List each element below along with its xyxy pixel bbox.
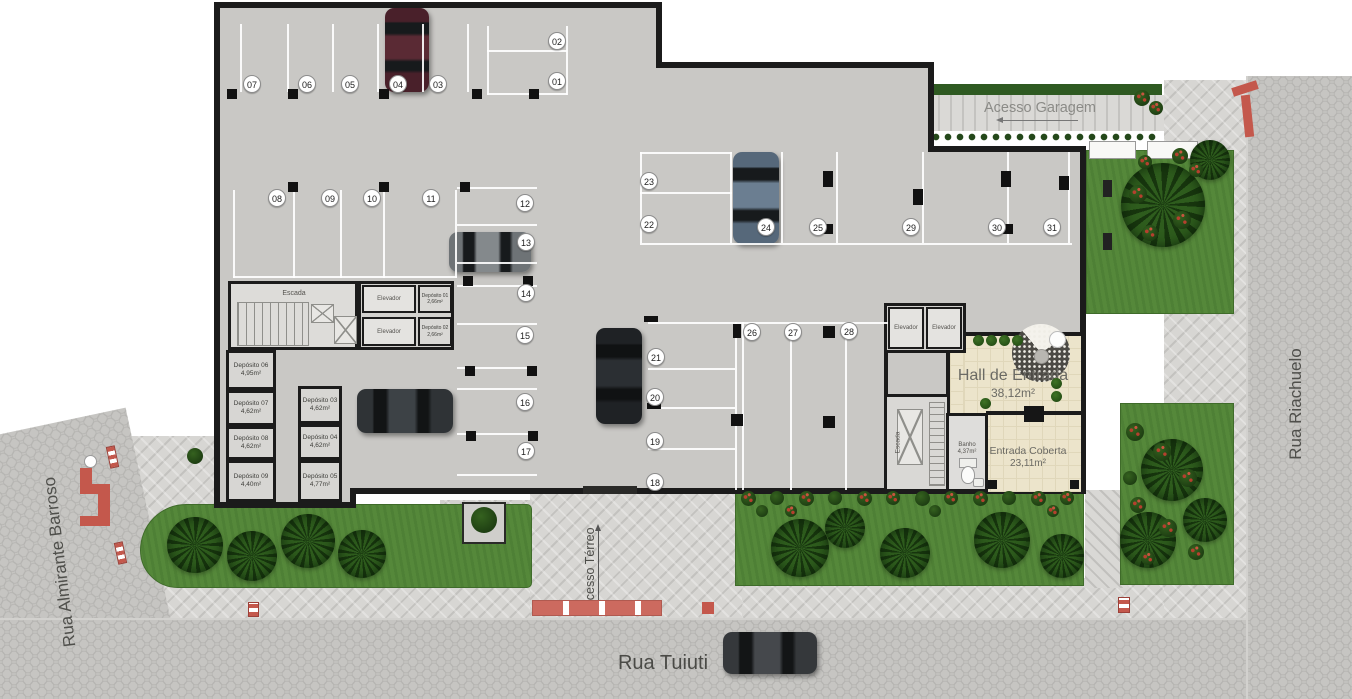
stall-line bbox=[487, 93, 567, 95]
shrub bbox=[1138, 155, 1152, 169]
stall-line bbox=[742, 322, 744, 490]
parking-spot-badge: 03 bbox=[429, 75, 447, 93]
parking-spot-badge: 20 bbox=[646, 388, 664, 406]
parking-spot-badge: 12 bbox=[516, 194, 534, 212]
stall-line bbox=[836, 152, 838, 243]
hall-table bbox=[1049, 331, 1066, 348]
potted-plant bbox=[980, 398, 991, 409]
pillar bbox=[1059, 176, 1069, 190]
parking-spot-badge: 06 bbox=[298, 75, 316, 93]
tactile-strip bbox=[532, 600, 662, 616]
parking-spot-badge: 22 bbox=[640, 215, 658, 233]
parking-spot-badge: 13 bbox=[517, 233, 535, 251]
shrub bbox=[1031, 491, 1046, 506]
deposito-area: 2,66m² bbox=[427, 332, 443, 339]
stall-line bbox=[566, 26, 568, 95]
stair-treads-hall bbox=[929, 402, 945, 486]
shrub bbox=[1141, 551, 1155, 565]
parking-spot-badge: 21 bbox=[647, 348, 665, 366]
pillar bbox=[731, 414, 743, 426]
parking-spot-badge: 07 bbox=[243, 75, 261, 93]
stair-landing-2 bbox=[334, 316, 357, 344]
parking-spot-badge: 09 bbox=[321, 189, 339, 207]
pillar bbox=[733, 324, 741, 338]
parking-spot-badge: 14 bbox=[517, 284, 535, 302]
coberta-wall-b bbox=[1044, 411, 1082, 415]
shrub bbox=[929, 505, 941, 517]
coberta-area: 23,11m² bbox=[968, 458, 1088, 469]
stall-line bbox=[457, 262, 537, 264]
bench-2 bbox=[1103, 233, 1112, 250]
shrub bbox=[1189, 163, 1203, 177]
stair-room-hall: Escada bbox=[884, 394, 950, 492]
tree bbox=[771, 519, 829, 577]
deposito-area: 2,66m² bbox=[427, 299, 443, 306]
shrub bbox=[799, 491, 814, 506]
pillar bbox=[823, 171, 833, 187]
shrub bbox=[785, 505, 797, 517]
parking-spot-badge: 24 bbox=[757, 218, 775, 236]
deposito-room: Depósito 094,40m² bbox=[226, 460, 276, 502]
parking-spot-badge: 18 bbox=[646, 473, 664, 491]
parking-spot-badge: 29 bbox=[902, 218, 920, 236]
pillar bbox=[379, 182, 389, 192]
planter-1 bbox=[1089, 141, 1136, 159]
stall-line bbox=[377, 24, 379, 92]
pillar bbox=[460, 182, 470, 192]
stall-line bbox=[845, 322, 847, 490]
deposito-name: Depósito 06 bbox=[234, 362, 269, 370]
shrub bbox=[1172, 148, 1188, 164]
stall-line bbox=[790, 322, 792, 490]
deposito-area: 4,62m² bbox=[241, 408, 261, 416]
shrub bbox=[1126, 423, 1144, 441]
hall-name: Hall de Entrada bbox=[943, 367, 1083, 385]
tree bbox=[880, 528, 930, 578]
stair-hall-label: Escada bbox=[895, 418, 902, 468]
deposito-room: Depósito 012,66m² bbox=[418, 285, 452, 313]
potted-plant bbox=[1051, 378, 1062, 389]
parking-spot-badge: 26 bbox=[743, 323, 761, 341]
potted-plant bbox=[1012, 335, 1023, 346]
parking-spot-badge: 25 bbox=[809, 218, 827, 236]
parking-spot-badge: 02 bbox=[548, 32, 566, 50]
potted-plant bbox=[973, 335, 984, 346]
stall-line bbox=[457, 474, 537, 476]
parking-spot-badge: 19 bbox=[646, 432, 664, 450]
gate-post bbox=[84, 455, 97, 468]
stall-line bbox=[640, 152, 732, 154]
stair-landing-1 bbox=[311, 304, 334, 323]
acesso-garagem-label: Acesso Garagem bbox=[960, 100, 1120, 116]
stall-line bbox=[340, 190, 342, 278]
shrub bbox=[886, 491, 900, 505]
tree bbox=[167, 517, 223, 573]
deposito-name: Depósito 04 bbox=[303, 434, 338, 442]
stall-line bbox=[781, 152, 783, 243]
potted-plant bbox=[986, 335, 997, 346]
floor-plan: Escada Elevador Elevador Elevador Elevad… bbox=[0, 0, 1352, 699]
coberta-doormat bbox=[1024, 406, 1044, 422]
stall-line bbox=[287, 24, 289, 92]
sink bbox=[973, 478, 984, 487]
potted-plant bbox=[999, 335, 1010, 346]
stall-line bbox=[648, 448, 735, 450]
deposito-name: Depósito 03 bbox=[303, 397, 338, 405]
stall-line bbox=[487, 26, 489, 95]
parking-spot-badge: 17 bbox=[517, 442, 535, 460]
potted-plant bbox=[1051, 391, 1062, 402]
pillar bbox=[288, 182, 298, 192]
acesso-terreo-label: Acesso Térreo bbox=[583, 526, 597, 610]
coberta-post-left bbox=[988, 480, 997, 489]
deposito-room: Depósito 034,62m² bbox=[298, 386, 342, 424]
stall-line bbox=[487, 50, 567, 52]
deposito-room: Depósito 044,62m² bbox=[298, 424, 342, 460]
tree bbox=[281, 514, 335, 568]
shrub bbox=[915, 491, 930, 506]
stall-line bbox=[648, 368, 735, 370]
deposito-room: Depósito 074,62m² bbox=[226, 390, 276, 426]
elevator-3-label: Elevador bbox=[894, 325, 918, 331]
shrub bbox=[1159, 519, 1177, 537]
pillar bbox=[913, 189, 923, 205]
shrub bbox=[756, 505, 768, 517]
pillar bbox=[823, 416, 835, 428]
stall-line bbox=[640, 192, 732, 194]
bench-1 bbox=[1103, 180, 1112, 197]
shrub bbox=[471, 507, 497, 533]
pillar bbox=[528, 431, 538, 441]
deposito-room: Depósito 022,66m² bbox=[418, 317, 452, 346]
shrub bbox=[741, 491, 756, 506]
shrub bbox=[1047, 505, 1059, 517]
deposito-name: Depósito 08 bbox=[234, 435, 269, 443]
shrub bbox=[944, 491, 958, 505]
shrub bbox=[187, 448, 203, 464]
deposito-name: Depósito 07 bbox=[234, 400, 269, 408]
stall-line bbox=[457, 323, 537, 325]
parking-spot-badge: 31 bbox=[1043, 218, 1061, 236]
deposito-area: 4,62m² bbox=[241, 443, 261, 451]
shrub bbox=[973, 491, 988, 506]
stall-line bbox=[455, 190, 457, 278]
acesso-garagem-arrow-line bbox=[1002, 120, 1078, 121]
shrub bbox=[1142, 225, 1158, 241]
elevator-1: Elevador bbox=[362, 285, 416, 313]
tree bbox=[1040, 534, 1084, 578]
parking-spot-badge: 05 bbox=[341, 75, 359, 93]
parking-spot-badge: 11 bbox=[422, 189, 440, 207]
stall-line bbox=[648, 407, 735, 409]
terreo-door bbox=[583, 486, 637, 494]
stall-line bbox=[457, 388, 537, 390]
tree bbox=[974, 512, 1030, 568]
shrub bbox=[770, 491, 784, 505]
shrub bbox=[1173, 211, 1191, 229]
elevator-4: Elevador bbox=[926, 307, 962, 349]
stall-line bbox=[240, 24, 242, 92]
shrub bbox=[1188, 544, 1204, 560]
hall-west-wall bbox=[884, 350, 888, 396]
car-aisle bbox=[596, 328, 642, 424]
pillar bbox=[529, 89, 539, 99]
shrub bbox=[857, 491, 872, 506]
deposito-room: Depósito 084,62m² bbox=[226, 426, 276, 460]
deposito-area: 4,77m² bbox=[310, 481, 330, 489]
pillar bbox=[472, 89, 482, 99]
elevator-4-label: Elevador bbox=[932, 325, 956, 331]
gate-seg-3 bbox=[98, 492, 110, 518]
stall-line bbox=[332, 24, 334, 92]
stall-line bbox=[467, 24, 469, 92]
stall-line bbox=[293, 190, 295, 278]
elevator-2-label: Elevador bbox=[377, 329, 401, 335]
curb-marker-bottom-3 bbox=[1118, 597, 1130, 613]
tree bbox=[825, 508, 865, 548]
stall-line bbox=[422, 24, 424, 92]
elevator-2: Elevador bbox=[362, 317, 416, 346]
hall-chair bbox=[1034, 349, 1049, 364]
pillar bbox=[465, 366, 475, 376]
shrub bbox=[1123, 471, 1137, 485]
elevator-1-label: Elevador bbox=[377, 296, 401, 302]
car-street bbox=[723, 632, 817, 674]
stair-room-main: Escada bbox=[228, 281, 358, 350]
deposito-room: Depósito 054,77m² bbox=[298, 460, 342, 502]
pillar bbox=[823, 326, 835, 338]
parking-spot-badge: 08 bbox=[268, 189, 286, 207]
pillar bbox=[644, 316, 658, 322]
tree bbox=[227, 531, 277, 581]
acesso-garagem-arrow-head bbox=[996, 117, 1003, 123]
pillar bbox=[463, 276, 473, 286]
deposito-name: Depósito 09 bbox=[234, 473, 269, 481]
parking-spot-badge: 16 bbox=[516, 393, 534, 411]
stall-line bbox=[457, 224, 537, 226]
pillar bbox=[1001, 171, 1011, 187]
stall-line bbox=[1068, 152, 1070, 243]
coberta-wall-a bbox=[986, 411, 1024, 415]
curb-marker-bottom-1 bbox=[248, 602, 259, 617]
street-right-label: Rua Riachuelo bbox=[1286, 294, 1306, 514]
parking-spot-badge: 27 bbox=[784, 323, 802, 341]
parking-spot-badge: 15 bbox=[516, 326, 534, 344]
deposito-room: Depósito 064,95m² bbox=[226, 350, 276, 390]
shrub bbox=[1130, 497, 1146, 513]
deposito-area: 4,62m² bbox=[310, 442, 330, 450]
stair-room-label: Escada bbox=[261, 290, 327, 297]
stall-line bbox=[640, 243, 1072, 245]
parking-spot-badge: 04 bbox=[389, 75, 407, 93]
shrub bbox=[1060, 491, 1074, 505]
coberta-name: Entrada Coberta bbox=[968, 445, 1088, 457]
curb-marker-bottom-2 bbox=[702, 602, 714, 614]
pillar bbox=[288, 89, 298, 99]
shrub bbox=[1149, 101, 1163, 115]
tree bbox=[338, 530, 386, 578]
gate-seg-4 bbox=[80, 516, 110, 526]
stall-line bbox=[233, 190, 235, 278]
parking-spot-badge: 23 bbox=[640, 172, 658, 190]
elevator-3: Elevador bbox=[888, 307, 924, 349]
acesso-terreo-arrow-head bbox=[595, 524, 601, 531]
pillar bbox=[466, 431, 476, 441]
shrub bbox=[1129, 185, 1147, 203]
stair-treads bbox=[237, 302, 309, 346]
shrub bbox=[1179, 469, 1197, 487]
shrub bbox=[1002, 491, 1016, 505]
pillar bbox=[227, 89, 237, 99]
deposito-area: 4,95m² bbox=[241, 370, 261, 378]
tree bbox=[1183, 498, 1227, 542]
hall-area: 38,12m² bbox=[943, 386, 1083, 400]
shrub bbox=[1153, 443, 1171, 461]
pillar bbox=[527, 366, 537, 376]
stall-line bbox=[233, 276, 457, 278]
deposito-name: Depósito 05 bbox=[303, 473, 338, 481]
stall-line bbox=[730, 152, 732, 243]
tree bbox=[1141, 439, 1203, 501]
ramp-hedge-top bbox=[928, 84, 1162, 95]
parking-spot-badge: 10 bbox=[363, 189, 381, 207]
car-spot-16 bbox=[357, 389, 453, 433]
shrub bbox=[1134, 90, 1150, 106]
stall-line bbox=[735, 322, 737, 490]
parking-spot-badge: 30 bbox=[988, 218, 1006, 236]
deposito-area: 4,40m² bbox=[241, 481, 261, 489]
pillar bbox=[379, 89, 389, 99]
parking-spot-badge: 01 bbox=[548, 72, 566, 90]
stall-line bbox=[383, 190, 385, 278]
parking-spot-badge: 28 bbox=[840, 322, 858, 340]
deposito-area: 4,62m² bbox=[310, 405, 330, 413]
coberta-post-right bbox=[1070, 480, 1079, 489]
shrub bbox=[828, 491, 842, 505]
